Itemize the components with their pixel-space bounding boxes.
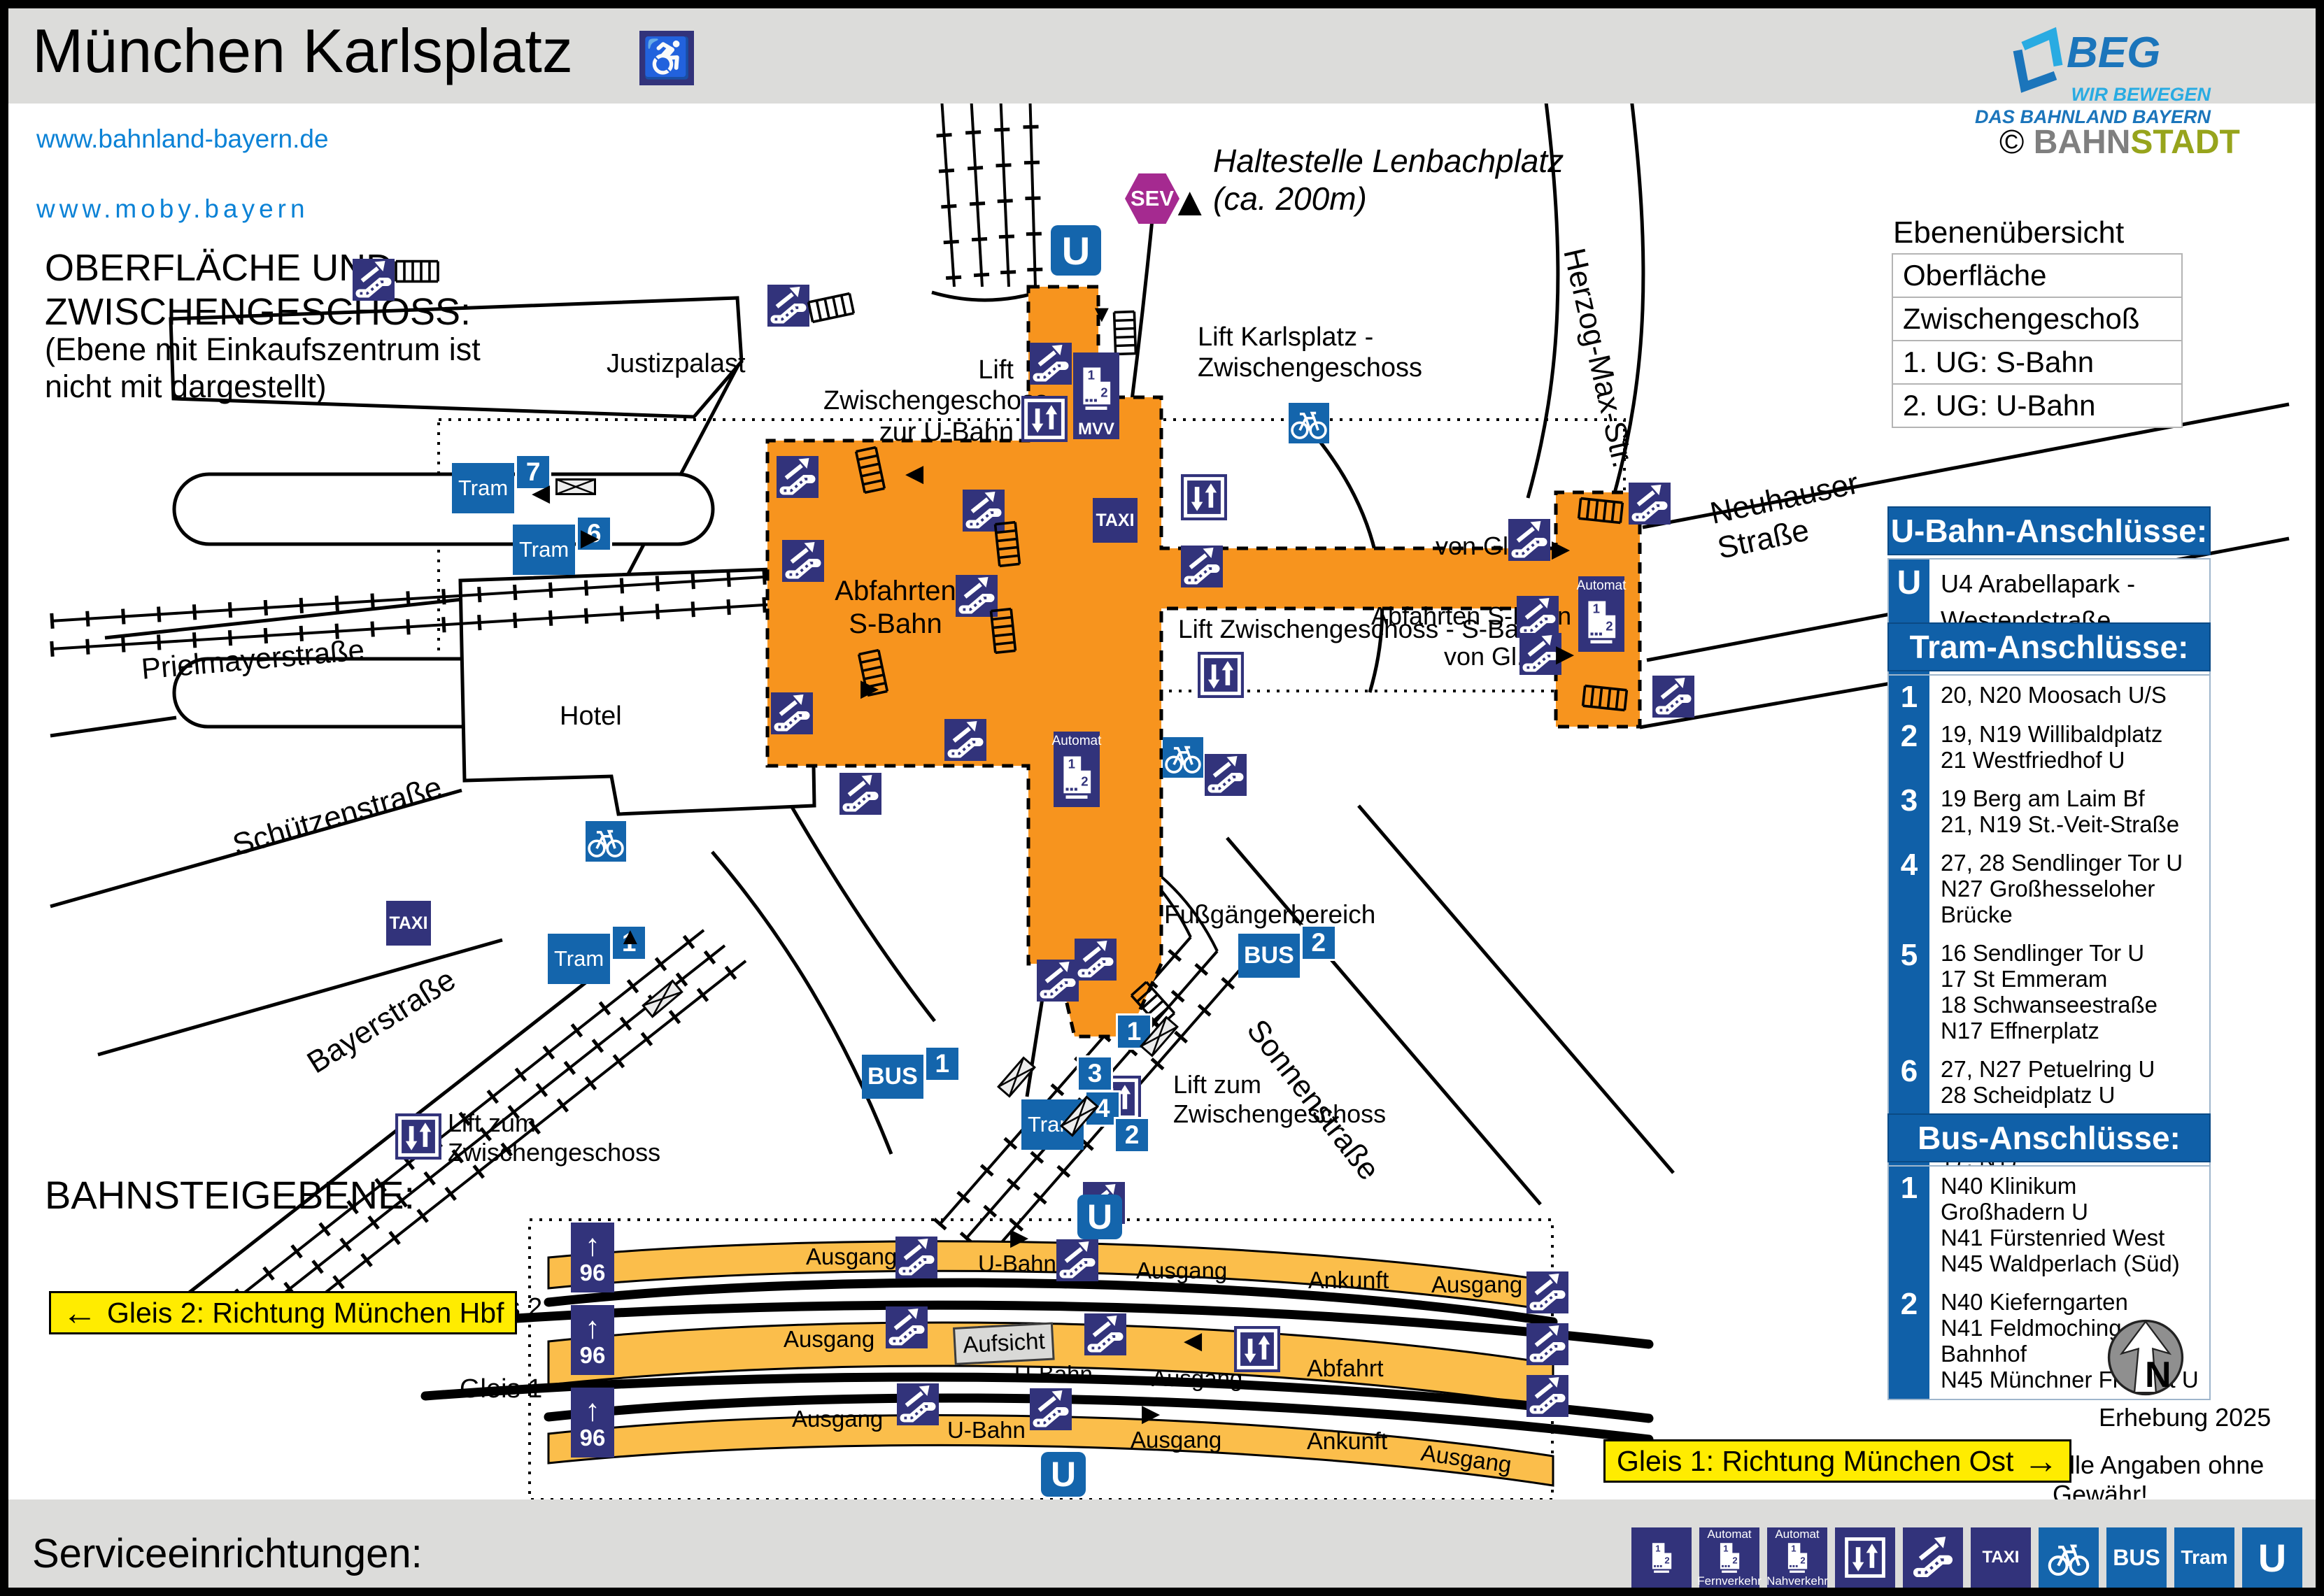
legend-label: BUS [2113,1545,2160,1571]
direction-text: Gleis 1: Richtung München Ost [1617,1445,2013,1478]
label-herzog-max-str: Herzog-Max-Str. [1556,245,1641,471]
direction-arrow-icon: ▼ [1090,302,1114,326]
stairs-icon [1578,678,1632,717]
tram-stop-symbol [997,1056,1036,1098]
tram-destinations: 27, N27 Petuelring U 28 Scheidplatz U [1929,1050,2209,1114]
taxi-icon: TAXI [1093,498,1138,543]
label-ankunft-1: Ankunft [1308,1267,1389,1295]
escalator-icon [1629,483,1671,525]
escalator-icon [767,285,809,327]
stairs-icon [392,255,442,288]
lift-icon [1021,396,1068,442]
tram-stop-number: 4 [1889,843,1929,934]
escalator-icon [1084,1313,1126,1355]
legend-label: U [2258,1535,2286,1581]
direction-arrow-icon: ◀ [1184,1329,1202,1353]
beg-wordmark: BEG [2067,28,2160,78]
direction-arrow-icon: ▶ [581,526,599,550]
direction-arrow-icon: ▶ [1010,1225,1028,1249]
bus-stop-number: 2 [1889,1283,1929,1399]
escalator-icon [1056,1239,1098,1281]
label-haltestelle-lenbachplatz: Haltestelle Lenbachplatz (ca. 200m) [1213,143,1564,218]
u-bahn-logo: U [1041,1452,1086,1497]
bus-word: BUS [1238,934,1300,978]
ubahn-panel-title: U-Bahn-Anschlüsse: [1887,506,2211,555]
tram-stop-symbol [642,979,683,1018]
u-bahn-icon: U [2242,1527,2302,1588]
direction-arrow-icon: ▶ [1142,1402,1160,1425]
platform-length-marker: ↑96 [571,1305,614,1375]
escalator-icon [886,1306,928,1348]
label-ausgang-2: Ausgang [1136,1257,1227,1285]
station-map-poster: 1 2 [0,0,2324,1596]
direction-box-gleis1: Gleis 1: Richtung München Ost → [1603,1439,2071,1483]
tram-destinations: 27, 28 Sendlinger Tor U N27 Großhesseloh… [1929,843,2209,934]
taxi-icon: TAXI [386,901,431,946]
tram-stop-number: 1 [1889,676,1929,715]
label-ausgang-7: Ausgang [1431,1271,1522,1299]
ticket-machine-icon [1631,1527,1692,1588]
bus-word: BUS [862,1055,923,1099]
escalator-icon [1652,676,1694,718]
label-justizpalast: Justizpalast [607,348,746,379]
escalator-icon [1903,1527,1963,1588]
label-ankunft-2: Ankunft [1307,1428,1387,1456]
escalator-icon [1519,633,1561,675]
right-arrow-icon: → [2023,1447,2058,1475]
escalator-icon [1030,343,1072,385]
ticket-machine-icon: Automat [1578,576,1624,652]
wheelchair-icon: ♿ [639,31,694,85]
link-bahnland-bayern: www.bahnland-bayern.de [36,124,329,153]
label-fussgaengerbereich: Fußgängerbereich [1164,899,1375,929]
direction-arrow-icon: ▶ [1556,642,1574,666]
stairs-icon [988,518,1026,571]
tram-destinations: 16 Sendlinger Tor U 17 St Emmeram 18 Sch… [1929,934,2209,1050]
north-compass-icon: N [2106,1318,2185,1397]
escalator-icon [777,456,819,498]
stairs-icon [849,442,892,498]
escalator-icon [353,259,395,301]
bike-icon [2039,1527,2099,1588]
platform-length-marker: ↑96 [571,1388,614,1458]
escalator-icon [897,1383,939,1425]
up-arrow-icon: ↑ [585,1395,600,1426]
service-legend: AutomatFernverkehrAutomatNahverkehrTAXIB… [1631,1527,2302,1588]
tram-stop-number: 2 [1889,715,1929,779]
bus-panel-title: Bus-Anschlüsse: [1887,1113,2211,1162]
bus-stop-number: 1 [926,1048,958,1080]
tram-destinations: 19, N19 Willibaldplatz 21 Westfriedhof U [1929,715,2209,779]
legend-label: TAXI [1983,1548,2020,1567]
tram-stop-number: 5 [1889,934,1929,1050]
automat-caption: Automat [1052,734,1102,749]
stairs-icon [1574,491,1628,529]
copyright-icon: © [1999,124,2024,161]
automat-nahverkehr-icon: AutomatNahverkehr [1767,1527,1827,1588]
heading-note: (Ebene mit Einkaufszentrum ist nicht mit… [45,332,481,405]
bike-icon [1163,737,1203,778]
escalator-icon [1030,1388,1072,1430]
label-ausgang-3: Ausgang [784,1326,874,1353]
bus-destinations: N40 Klinikum Großhadern U N41 Fürstenrie… [1929,1167,2209,1283]
taxi-icon: TAXI [1971,1527,2031,1588]
beg-logo: BEG WIR BEWEGEN DAS BAHNLAND BAYERN [2008,22,2064,103]
automat-fernverkehr-icon: AutomatFernverkehr [1699,1527,1759,1588]
escalator-icon [1526,1323,1568,1365]
tram-platform-number: 3 [1079,1057,1111,1090]
heading-bahnsteigebene: BAHNSTEIGEBENE: [45,1172,415,1218]
label-lift-zum-zg-1: Lift zum Zwischengeschoss [448,1109,660,1167]
legend-caption-top: Automat [1707,1527,1751,1541]
label-hotel: Hotel [560,701,622,732]
platform-length-marker: ↑96 [571,1223,614,1292]
level-row: Oberfläche [1892,253,2183,298]
bus-stop-badge: BUS1 [862,1055,958,1099]
escalator-icon [839,773,881,815]
lift-icon [1181,474,1227,520]
u-bahn-logo: U [1077,1195,1122,1239]
tram-word: Tram [548,934,610,984]
stairs-icon [984,604,1022,658]
label-erhebung: Erhebung 2025 [2099,1403,2271,1432]
tram-platform-number: 2 [1116,1119,1148,1151]
escalator-icon [944,719,986,761]
bus-stop-badge: BUS2 [1238,934,1335,978]
direction-arrow-icon: ◀ [905,462,923,485]
label-ubahn-1: U-Bahn [978,1251,1056,1278]
levels-table: Oberfläche Zwischengeschoß 1. UG: S-Bahn… [1892,255,2183,428]
u-bahn-logo: U [1051,225,1101,276]
escalator-icon [1526,1271,1568,1313]
direction-arrow-icon: ▲ [618,925,642,948]
lift-icon [1835,1527,1895,1588]
legend-caption-bottom: Nahverkehr [1766,1574,1828,1588]
bahnstadt-credit: © BAHNSTADT [1999,123,2240,162]
level-row: 1. UG: S-Bahn [1892,340,2183,385]
label-abfahrten-sbahn: Abfahrten S-Bahn [819,575,972,641]
escalator-icon [1037,960,1079,1002]
lift-icon [395,1113,441,1160]
credit-bahn: BAHN [2034,124,2131,161]
direction-arrow-icon: ▶ [860,676,879,700]
tram-row: 219, N19 Willibaldplatz 21 Westfriedhof … [1889,715,2209,779]
label-ausgang-1: Ausgang [806,1244,897,1271]
compass-n: N [2145,1354,2171,1396]
escalator-icon [771,692,813,734]
legend-label: Tram [2181,1546,2228,1569]
label-aufsicht: Aufsicht [953,1322,1055,1365]
lift-icon [1234,1326,1280,1372]
link-moby-bayern: www.moby.bayern [36,194,309,223]
tram-stop-number: 6 [1889,1050,1929,1114]
label-bayerstrasse: Bayerstraße [301,962,462,1081]
tram-row: 120, N20 Moosach U/S [1889,676,2209,715]
escalator-icon [1075,939,1117,981]
poi-triangle-icon: ▲ [1170,182,1210,222]
label-prielmayerstrasse: Prielmayerstraße [140,632,366,686]
page-title: München Karlsplatz [32,15,573,87]
escalator-icon [895,1237,937,1278]
bus-stop-number: 1 [1889,1167,1929,1283]
bus-stop-number: 2 [1303,927,1335,959]
automat-caption: Automat [1577,578,1627,594]
tram-word: Tram [452,463,514,513]
label-ausgang-6: Ausgang [1131,1427,1221,1454]
tram-row: 319 Berg am Laim Bf 21, N19 St.-Veit-Str… [1889,779,2209,843]
tram-destinations: 20, N20 Moosach U/S [1929,676,2209,715]
label-lift-zur-ubahn: Lift Zwischengeschoss zur U-Bahn [823,355,1014,448]
tram-row: 427, 28 Sendlinger Tor U N27 Großhesselo… [1889,843,2209,934]
level-row: Zwischengeschoß [1892,297,2183,341]
label-lift-zum-zg-2: Lift zum Zwischengeschoss [1173,1070,1386,1129]
tram-word: Tram [513,525,575,575]
tram-stop-symbol [555,478,596,495]
tram-panel-title: Tram-Anschlüsse: [1887,622,2211,671]
mvv-caption: MVV [1078,422,1114,437]
escalator-icon [1205,754,1247,796]
legend-caption-bottom: Fernverkehr [1697,1574,1762,1588]
levels-title: Ebenenübersicht [1893,215,2124,250]
label-neuhauser-strasse: Neuhauser Straße [1707,465,1869,567]
label-ausgang-8: Ausgang [1419,1439,1513,1479]
beg-tagline-1: WIR BEWEGEN [2008,84,2211,106]
label-ubahn-3: U-Bahn [947,1417,1026,1444]
left-arrow-icon: ← [62,1299,97,1327]
label-abfahrt: Abfahrt [1307,1355,1384,1383]
mvv-ticket-machine-icon: MVV [1073,352,1119,439]
credit-stadt: STADT [2130,124,2239,161]
bike-icon [586,821,626,862]
escalator-icon [1181,546,1223,587]
website-links: www.bahnland-bayern.de www.moby.bayern [36,122,329,227]
tram-destinations: 19 Berg am Laim Bf 21, N19 St.-Veit-Stra… [1929,779,2209,843]
stairs-icon [803,286,859,329]
up-arrow-icon: ↑ [585,1230,600,1261]
escalator-icon [1517,596,1559,638]
label-gleis1: Gleis 1 [460,1374,542,1404]
bike-icon [1289,403,1329,443]
tram-icon: Tram [2174,1527,2234,1588]
direction-arrow-icon: ◀ [532,481,550,505]
tram-stop-number: 3 [1889,779,1929,843]
up-arrow-icon: ↑ [585,1313,600,1344]
escalator-icon [782,540,824,582]
label-ubahn-2: U-Bahn [1014,1361,1093,1388]
label-ausgang-4: Ausgang [1152,1365,1242,1392]
direction-arrow-icon: ▶ [1552,537,1570,561]
level-row: 2. UG: U-Bahn [1892,383,2183,428]
escalator-icon [1508,519,1550,561]
label-schuetzenstrasse: Schützenstraße [229,769,446,863]
bus-icon: BUS [2106,1527,2167,1588]
label-ausgang-5: Ausgang [792,1406,883,1433]
escalator-icon [1526,1375,1568,1417]
service-title: Serviceeinrichtungen: [32,1530,423,1577]
tram-row: 627, N27 Petuelring U 28 Scheidplatz U [1889,1050,2209,1114]
wheelchair-glyph: ♿ [642,35,691,81]
tram-row: 516 Sendlinger Tor U 17 St Emmeram 18 Sc… [1889,934,2209,1050]
legend-caption-top: Automat [1775,1527,1819,1541]
direction-box-gleis2: ← Gleis 2: Richtung München Hbf [49,1291,517,1334]
bus-row: 1N40 Klinikum Großhadern U N41 Fürstenri… [1889,1167,2209,1283]
lift-icon [1198,652,1244,698]
label-lift-karlsplatz: Lift Karlsplatz - Zwischengeschoss [1198,322,1422,384]
direction-text: Gleis 2: Richtung München Hbf [107,1297,504,1330]
ticket-machine-icon: Automat [1054,732,1100,807]
